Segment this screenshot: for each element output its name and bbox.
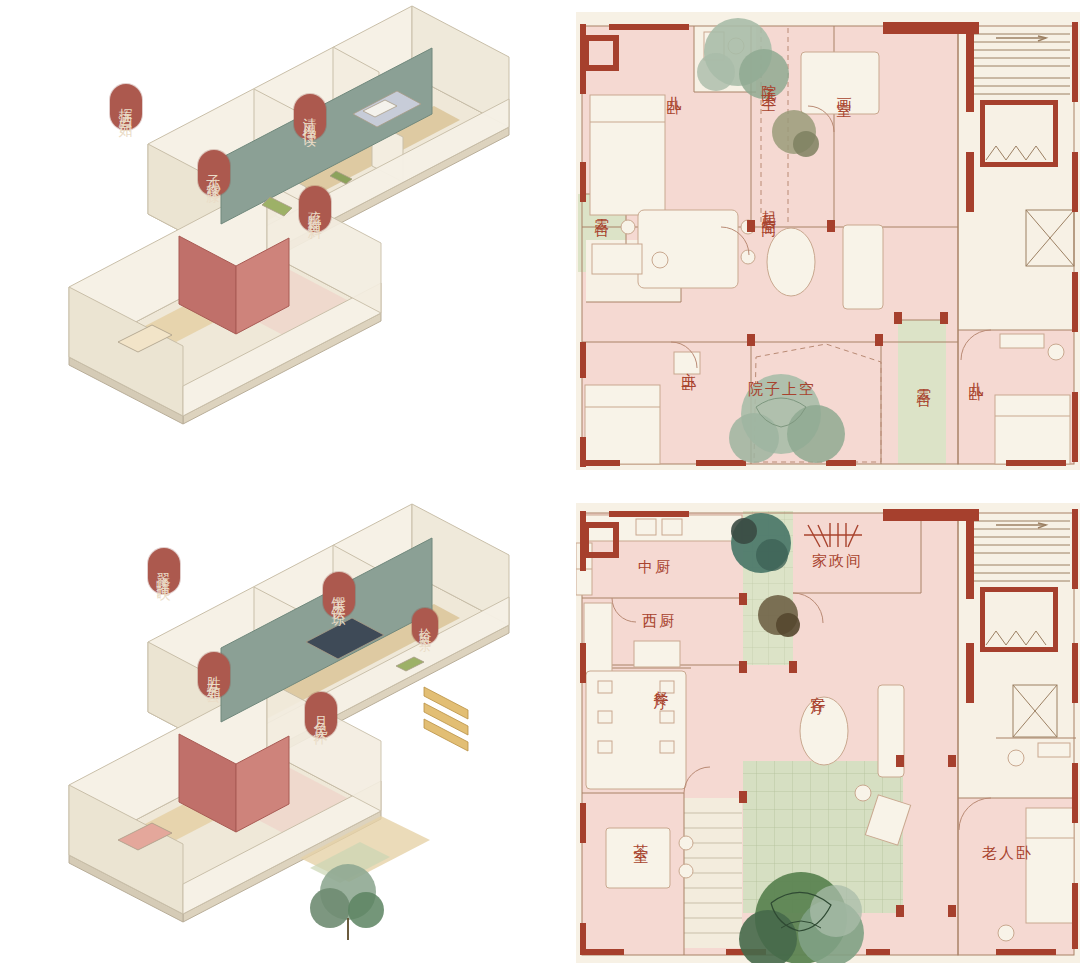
room-label: 儿卧 bbox=[966, 370, 985, 378]
stove-icon bbox=[662, 519, 682, 535]
walls bbox=[69, 504, 509, 914]
rug bbox=[767, 228, 815, 296]
annotation-pill: 挥洒自如 bbox=[110, 84, 142, 130]
room-label: 西厨 bbox=[642, 612, 676, 631]
room-label: 露台 bbox=[592, 206, 611, 214]
axonometric-lower-floor bbox=[0, 488, 565, 977]
room-label: 家政间 bbox=[812, 552, 863, 571]
room-label: 儿卧 bbox=[664, 84, 683, 92]
room-label: 院子上空 bbox=[748, 380, 816, 399]
floor-plan-upper: 儿卧 院子上空 画室 露台 起居空间 主卧 院子上空 露台 儿卧 bbox=[576, 12, 1080, 470]
bed-child-right bbox=[995, 395, 1070, 464]
room-label: 院子上空 bbox=[759, 72, 778, 88]
room-label: 客厅 bbox=[808, 684, 827, 692]
room-label: 起居空间 bbox=[759, 198, 778, 214]
annotation-pill: 疏影横斜 bbox=[299, 186, 331, 232]
toilet-icon bbox=[1048, 344, 1064, 360]
annotation-pill: 馔玉饮琼 bbox=[323, 572, 355, 618]
toilet-icon bbox=[1008, 750, 1024, 766]
floor-plan-upper-drawing bbox=[576, 12, 1080, 470]
bed-child-left bbox=[590, 95, 665, 215]
room-label: 露台 bbox=[914, 376, 933, 384]
room-label: 画室 bbox=[834, 86, 853, 94]
room-label: 茶室 bbox=[631, 832, 650, 840]
studio-table bbox=[801, 52, 879, 114]
annotation-pill: 清风伴读 bbox=[294, 94, 326, 140]
bathtub bbox=[592, 244, 642, 274]
room-label: 中厨 bbox=[638, 558, 672, 577]
sofa bbox=[843, 225, 883, 309]
rug bbox=[800, 697, 848, 765]
bed-elder bbox=[1026, 808, 1074, 923]
room-label: 主卧 bbox=[679, 360, 698, 368]
side-table bbox=[998, 925, 1014, 941]
annotation-pill: 翠峰掩映 bbox=[148, 548, 180, 594]
tree bbox=[310, 864, 384, 940]
annotation-pill: 子孙绕膝 bbox=[198, 150, 230, 196]
annotation-pill: 月色入怀 bbox=[305, 692, 337, 738]
west-kitchen-counter bbox=[584, 603, 612, 673]
vanity bbox=[1038, 743, 1070, 757]
axonometric-upper-floor bbox=[0, 0, 565, 490]
room-label: 餐厅 bbox=[651, 679, 670, 687]
axonometric-upper-floor-drawing bbox=[0, 0, 565, 490]
room-label: 老人卧 bbox=[982, 844, 1033, 863]
axonometric-lower-floor-drawing bbox=[0, 488, 565, 977]
island bbox=[634, 641, 680, 667]
vanity bbox=[1000, 334, 1044, 348]
sink-icon bbox=[636, 519, 656, 535]
toilet-icon bbox=[652, 252, 668, 268]
annotation-pill: 拾阶觅茶 bbox=[412, 608, 438, 644]
dining-table bbox=[638, 210, 738, 288]
bed-master bbox=[585, 385, 660, 464]
annotation-pill: 胜友如云 bbox=[198, 652, 230, 698]
floor-plan-lower: 中厨 家政间 西厨 餐厅 客厅 茶室 老人卧 bbox=[576, 503, 1080, 963]
cushion bbox=[855, 785, 871, 801]
